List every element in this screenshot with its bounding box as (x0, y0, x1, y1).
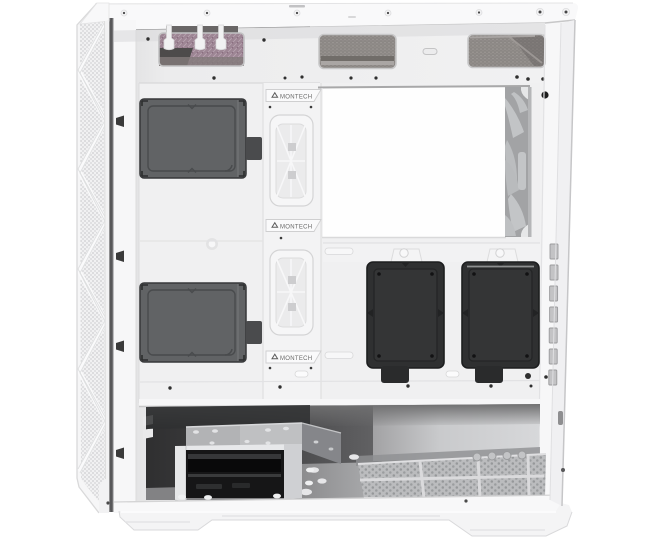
svg-text:MONTECH: MONTECH (280, 356, 312, 362)
svg-text:MONTECH: MONTECH (280, 95, 312, 101)
svg-text:MONTECH: MONTECH (280, 225, 312, 231)
